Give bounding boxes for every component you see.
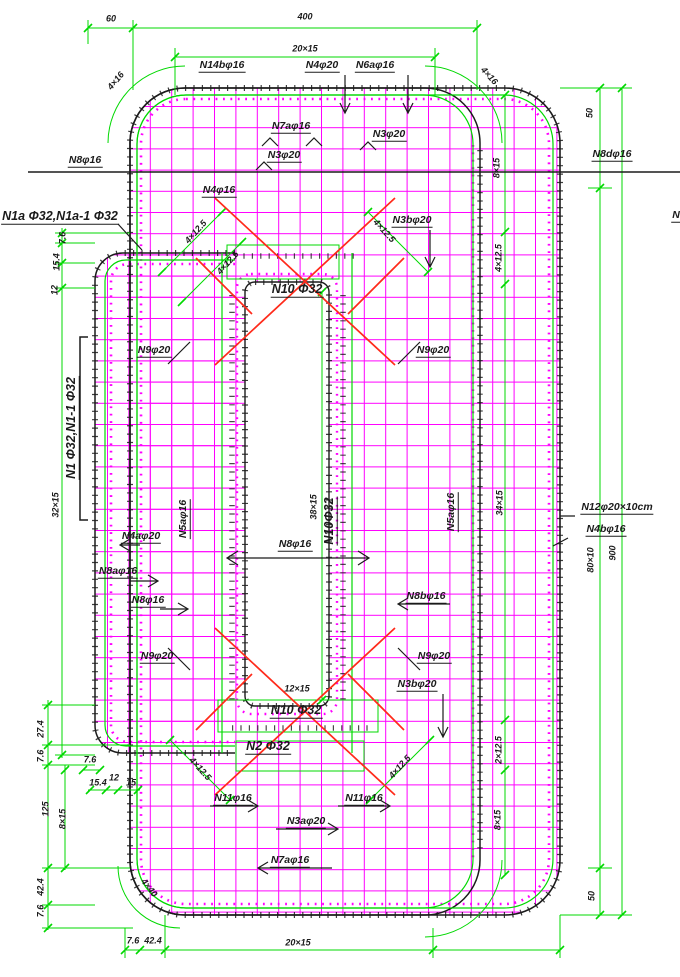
rebar-label-n8b: N8bφ16 [406,591,447,604]
rebar-label-n3-left: N3φ20 [267,150,302,163]
rebar-label-n3b-top: N3bφ20 [392,215,433,228]
dim-4x12-right: 4×12.5 [495,244,504,272]
rebar-label-n12: N12φ20×10cm [580,502,653,515]
dim-7-6-botleft-2: 7.6 [37,905,46,918]
dim-8x15-botleft: 8×15 [59,809,68,829]
dim-8x15-topright: 8×15 [493,158,502,178]
rebar-label-n11-left: N11φ16 [213,793,253,806]
rebar-label-n6a: N6aφ16 [355,60,395,73]
dim-42-4-bottom: 42.4 [144,937,162,946]
rebar-label-n8a: N8aφ16 [98,566,138,579]
dim-60: 60 [106,15,116,24]
rebar-label-n10-bot: N10 Φ32 [270,704,323,719]
rebar-label-n9-botright: N9φ20 [417,651,452,664]
rebar-label-n9-topleft: N9φ20 [137,345,172,358]
dim-38x15: 38×15 [310,494,319,519]
dim-12x15: 12×15 [284,685,309,694]
dim-15-step: 15 [126,779,136,788]
dim-900: 900 [609,545,618,560]
rebar-label-n4a: N4aφ20 [121,531,161,544]
rebar-label-n1-vert: N1 Φ32,N1-1 Φ32 [65,376,80,480]
dim-125: 125 [42,801,51,816]
rebar-label-n1a: N1a Φ32,N1a-1 Φ32 [1,210,119,225]
dim-15-4-topleft: 15.4 [53,253,62,271]
dim-50-botright: 50 [588,891,597,901]
dim-400: 400 [297,13,312,22]
dim-7-6-botleft-1: 7.6 [37,750,46,763]
drawing-canvas [0,0,680,977]
rebar-label-n5a-right: N5aφ16 [446,492,459,532]
rebar-label-n10-top: N10 Φ32 [271,283,324,298]
dim-32x15: 32×15 [52,492,61,517]
rebar-label-partial: N [671,210,680,223]
rebar-label-n9-topright: N9φ20 [416,345,451,358]
rebar-section-drawing: N14bφ16 N4φ20 N6aφ16 N7aφ16 N3φ20 N3φ20 … [0,0,680,977]
rebar-label-n11-right: N11φ16 [344,793,384,806]
dim-80x10: 80×10 [587,547,596,572]
dim-8x15-botright: 8×15 [494,810,503,830]
rebar-label-n8-left2: N8φ16 [131,595,166,608]
rebar-label-n8-topleft: N8φ16 [68,155,103,168]
dim-42-4-left: 42.4 [37,878,46,896]
rebar-label-n4: N4φ20 [305,60,340,73]
rebar-label-n8-center: N8φ16 [278,539,313,552]
rebar-label-n7a-top: N7aφ16 [271,121,311,134]
dim-50-topright: 50 [586,108,595,118]
dim-20x15-bottom: 20×15 [285,939,310,948]
dim-34x15: 34×15 [496,490,505,515]
rebar-label-n3a: N3aφ20 [286,816,326,829]
dim-15-4-step: 15.4 [89,779,107,788]
rebar-label-n2: N2 Φ32 [245,740,291,755]
rebar-label-n4s: N4φ16 [202,185,237,198]
dim-7-6-step: 7.6 [84,756,97,765]
rebar-label-n3b-bot: N3bφ20 [397,679,438,692]
dim-27-4: 27.4 [37,720,46,738]
dim-2x12: 2×12.5 [495,736,504,764]
rebar-label-n5a-left: N5aφ16 [178,499,191,539]
dim-12-topleft: 12 [51,285,60,295]
rebar-label-n8d: N8dφ16 [592,149,633,162]
rebar-label-n14b: N14bφ16 [199,60,246,73]
dim-7-6-topleft: 7.6 [59,232,68,245]
dim-20x15-top: 20×15 [292,45,317,54]
rebar-label-n7a-bot: N7aφ16 [270,855,310,868]
rebar-label-n10-vert: N10Φ32 [323,496,338,545]
rebar-label-n3-right: N3φ20 [372,129,407,142]
rebar-label-n4b: N4bφ16 [586,524,627,537]
dim-12-step: 12 [109,774,119,783]
rebar-label-n9-botleft: N9φ20 [140,651,175,664]
dim-7-6-bottom: 7.6 [127,937,140,946]
